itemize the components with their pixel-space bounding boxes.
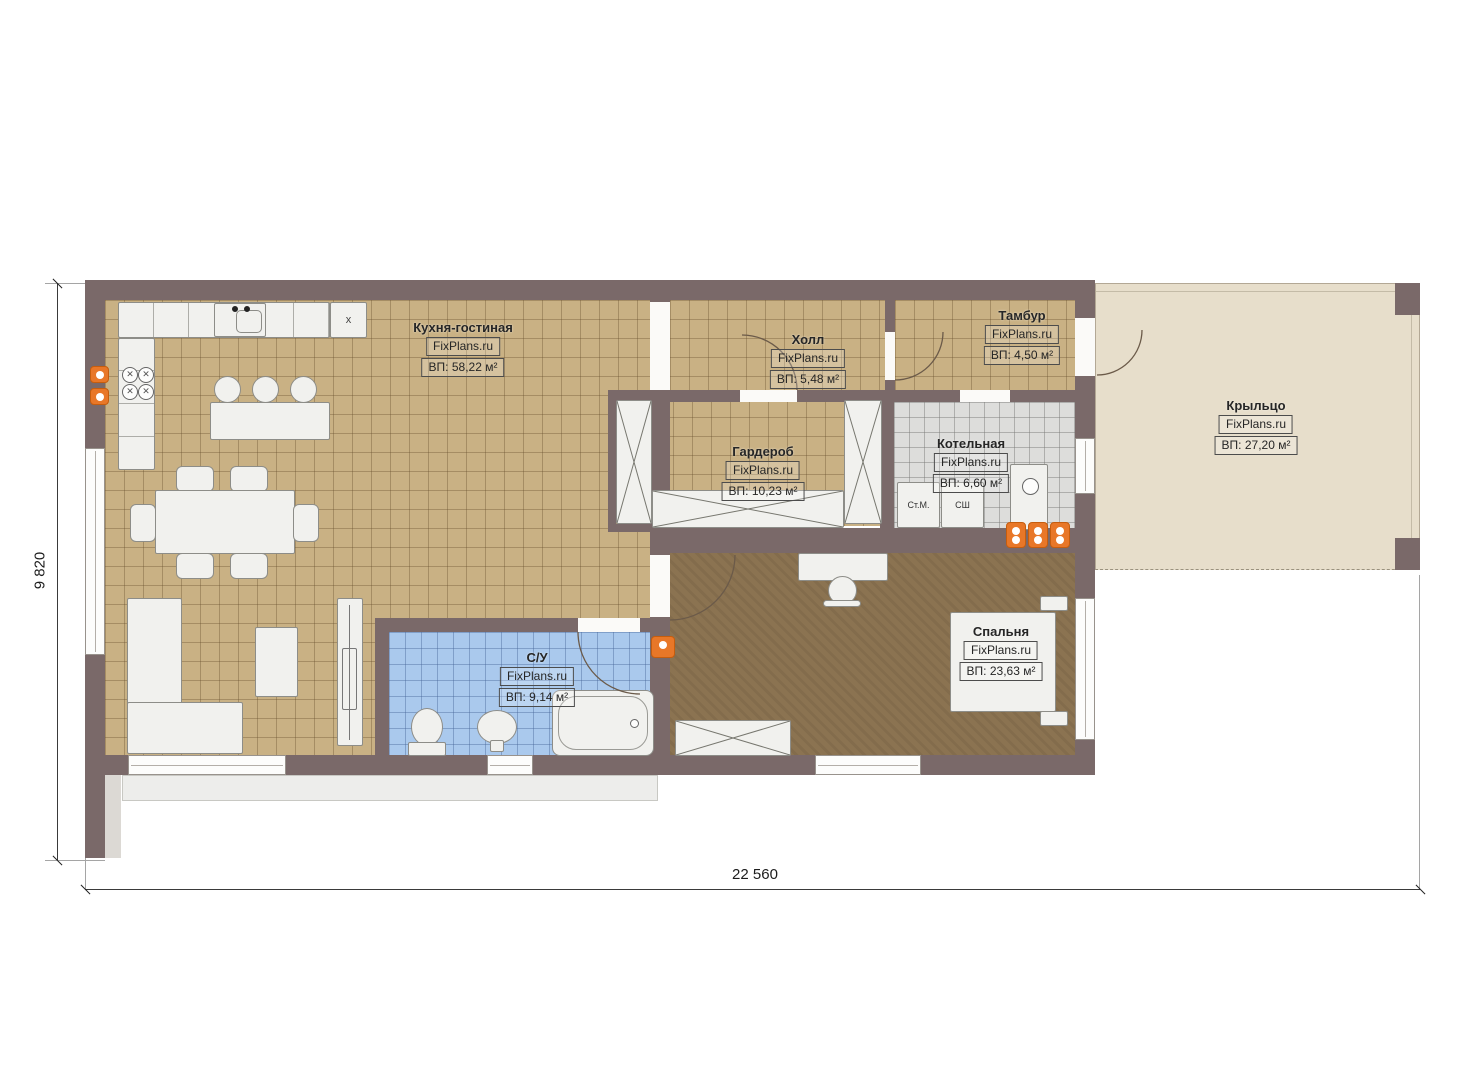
room-brand: FixPlans.ru [964, 641, 1038, 660]
room-label-bedroom: Спальня FixPlans.ru ВП: 23,63 м² [960, 624, 1043, 681]
bar-stool [214, 376, 241, 403]
x-cross-icon [845, 401, 881, 523]
room-name: Котельная [933, 436, 1009, 451]
room-name: Кухня-гостиная [413, 320, 513, 335]
boiler-unit [1010, 464, 1048, 530]
boiler-circle [1022, 478, 1039, 495]
window-boiler-right [1075, 438, 1095, 494]
bathroom-sink [477, 710, 517, 744]
opening-vestibule-boiler [960, 390, 1010, 402]
wall-wardrobe-bottom [608, 524, 652, 532]
extension-line [1419, 575, 1420, 889]
bar-stool [290, 376, 317, 403]
extension-line [45, 283, 85, 284]
room-brand: FixPlans.ru [985, 325, 1059, 344]
dining-chair [176, 466, 214, 492]
x-cross-icon [676, 721, 790, 755]
opening-bathroom-door [578, 618, 640, 632]
room-area: ВП: 9,14 м² [499, 688, 575, 707]
room-name: Гардероб [722, 444, 805, 459]
bathroom-sink-pedestal [490, 740, 504, 752]
room-label-boiler: Котельная FixPlans.ru ВП: 6,60 м² [933, 436, 1009, 493]
room-area: ВП: 23,63 м² [960, 662, 1043, 681]
opening-bedroom-door [650, 555, 670, 617]
room-area: ВП: 5,48 м² [770, 370, 846, 389]
sink-faucet-dot [232, 306, 238, 312]
room-label-porch: Крыльцо FixPlans.ru ВП: 27,20 м² [1215, 398, 1298, 455]
window-bedroom-bottom [815, 755, 921, 775]
room-name: Холл [770, 332, 846, 347]
dimension-line-horizontal [85, 889, 1420, 890]
room-area: ВП: 6,60 м² [933, 474, 1009, 493]
porch-pillar-bottom [1395, 538, 1420, 570]
heating-manifold [1006, 522, 1026, 548]
desk-chair-back [823, 600, 861, 607]
cooktop-burner: ✕ [122, 367, 138, 383]
dimension-height-label: 9 820 [32, 541, 49, 601]
window-living-bottom [128, 755, 286, 775]
wall-stub-bottom-left [85, 775, 105, 858]
room-brand: FixPlans.ru [771, 349, 845, 368]
dining-chair [230, 553, 268, 579]
dining-chair [293, 504, 319, 542]
x-cross-icon [617, 401, 651, 523]
radiator-valve [90, 388, 109, 405]
wardrobe-unit-left [616, 400, 652, 524]
radiator-valve [90, 366, 109, 383]
wardrobe-unit-right [844, 400, 882, 524]
dining-chair [230, 466, 268, 492]
heating-manifold [1028, 522, 1048, 548]
dining-chair [130, 504, 156, 542]
dimension-line-vertical [57, 283, 58, 860]
opening-hall-wardrobe [740, 390, 797, 402]
toilet-bowl [411, 708, 443, 746]
room-brand: FixPlans.ru [426, 337, 500, 356]
sofa-horizontal-section [127, 702, 243, 754]
dining-table [155, 490, 295, 554]
floor-plan: x ✕ ✕ ✕ ✕ Ст.М. СШ [0, 0, 1474, 1080]
room-label-hall: Холл FixPlans.ru ВП: 5,48 м² [770, 332, 846, 389]
sink-faucet-dot [244, 306, 250, 312]
room-brand: FixPlans.ru [934, 453, 1008, 472]
tv-line [349, 605, 350, 740]
room-area: ВП: 10,23 м² [722, 482, 805, 501]
dimension-width-label: 22 560 [700, 866, 810, 883]
room-name: Тамбур [984, 308, 1060, 323]
heating-manifold [1050, 522, 1070, 548]
room-brand: FixPlans.ru [500, 667, 574, 686]
room-brand: FixPlans.ru [1219, 415, 1293, 434]
kitchen-cabinet-x: x [330, 302, 367, 338]
bar-stool [252, 376, 279, 403]
cooktop-burner: ✕ [122, 384, 138, 400]
extension-line [85, 858, 86, 890]
bathtub-drain [630, 719, 639, 728]
window-living-left [85, 448, 105, 655]
extension-line [45, 860, 105, 861]
cooktop-burner: ✕ [138, 367, 154, 383]
bedroom-wardrobe [675, 720, 791, 756]
kitchen-counter-left [118, 338, 155, 470]
room-label-vestibule: Тамбур FixPlans.ru ВП: 4,50 м² [984, 308, 1060, 365]
opening-kitchen-hall [650, 302, 670, 390]
wall-bathroom-left [375, 618, 389, 755]
window-bedroom-right [1075, 598, 1095, 740]
room-brand: FixPlans.ru [726, 461, 800, 480]
room-area: ВП: 4,50 м² [984, 346, 1060, 365]
nightstand [1040, 596, 1068, 611]
nightstand [1040, 711, 1068, 726]
room-name: С/У [499, 650, 575, 665]
opening-hall-vestibule [885, 332, 895, 380]
wall-wardrobe-right [880, 390, 894, 533]
outdoor-deck [122, 775, 658, 801]
window-bathroom-bottom [487, 755, 533, 775]
room-label-kitchen-living: Кухня-гостиная FixPlans.ru ВП: 58,22 м² [413, 320, 513, 377]
dining-chair [176, 553, 214, 579]
room-area: ВП: 58,22 м² [422, 358, 505, 377]
room-label-wardrobe: Гардероб FixPlans.ru ВП: 10,23 м² [722, 444, 805, 501]
wall-wardrobe-left [608, 390, 616, 532]
wall-top [85, 280, 1095, 300]
room-label-bathroom: С/У FixPlans.ru ВП: 9,14 м² [499, 650, 575, 707]
towel-radiator [651, 636, 675, 658]
cooktop-burner: ✕ [138, 384, 154, 400]
sink-basin [236, 310, 262, 333]
room-area: ВП: 27,20 м² [1215, 436, 1298, 455]
kitchen-island [210, 402, 330, 440]
wall-stub-light [105, 775, 121, 858]
opening-vestibule-porch [1075, 318, 1095, 376]
coffee-table [255, 627, 298, 697]
toilet-tank [408, 742, 446, 756]
porch-pillar-top [1395, 283, 1420, 315]
room-name: Крыльцо [1215, 398, 1298, 413]
room-name: Спальня [960, 624, 1043, 639]
